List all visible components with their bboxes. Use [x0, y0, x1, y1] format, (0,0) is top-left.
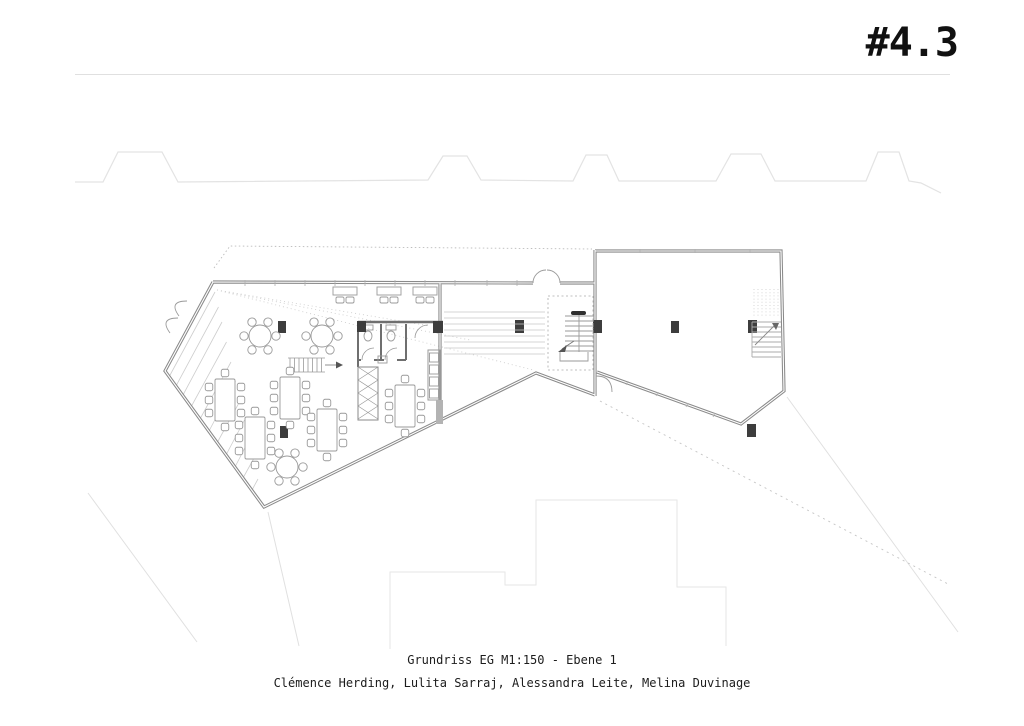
- east-wing-staircase: [596, 289, 781, 392]
- rect-table: [385, 375, 425, 437]
- hall-staircase: [288, 358, 343, 372]
- context-roofline: [75, 152, 941, 193]
- dining-furniture: [205, 287, 437, 485]
- round-table: [240, 318, 280, 354]
- entrance-ramp-hatch: [169, 292, 258, 490]
- window-table: [413, 287, 437, 303]
- columns: [278, 320, 757, 438]
- window-table: [333, 287, 357, 303]
- wc-fixtures: [363, 325, 396, 363]
- handrail: [571, 311, 586, 315]
- dashed-roof-overhang: [214, 246, 592, 268]
- caption-authors: Clémence Herding, Lulita Sarraj, Alessan…: [0, 676, 1024, 691]
- east-wing-door: [596, 376, 612, 392]
- caption: Grundriss EG M1:150 - Ebene 1 Clémence H…: [0, 653, 1024, 691]
- hatched-wall-piece: [436, 400, 443, 424]
- entrance-doors: [166, 301, 187, 333]
- plan-sheet: #4.3: [0, 0, 1024, 726]
- window-table: [377, 287, 401, 303]
- stair-direction-arrow: [336, 362, 343, 369]
- neighbour-building-outline: [390, 500, 726, 649]
- terrace-double-door: [533, 270, 560, 283]
- dotted-property-line: [600, 401, 948, 584]
- rect-table: [307, 399, 347, 461]
- corridor-staircase: [558, 311, 594, 361]
- caption-title: Grundriss EG M1:150 - Ebene 1: [0, 653, 1024, 668]
- wc-block: [358, 322, 443, 367]
- dumbwaiter-shaft: [358, 367, 378, 420]
- rect-table: [270, 367, 310, 429]
- round-table: [302, 318, 342, 354]
- site-boundary-lines: [88, 397, 958, 646]
- floor-plan-drawing: [0, 0, 1024, 726]
